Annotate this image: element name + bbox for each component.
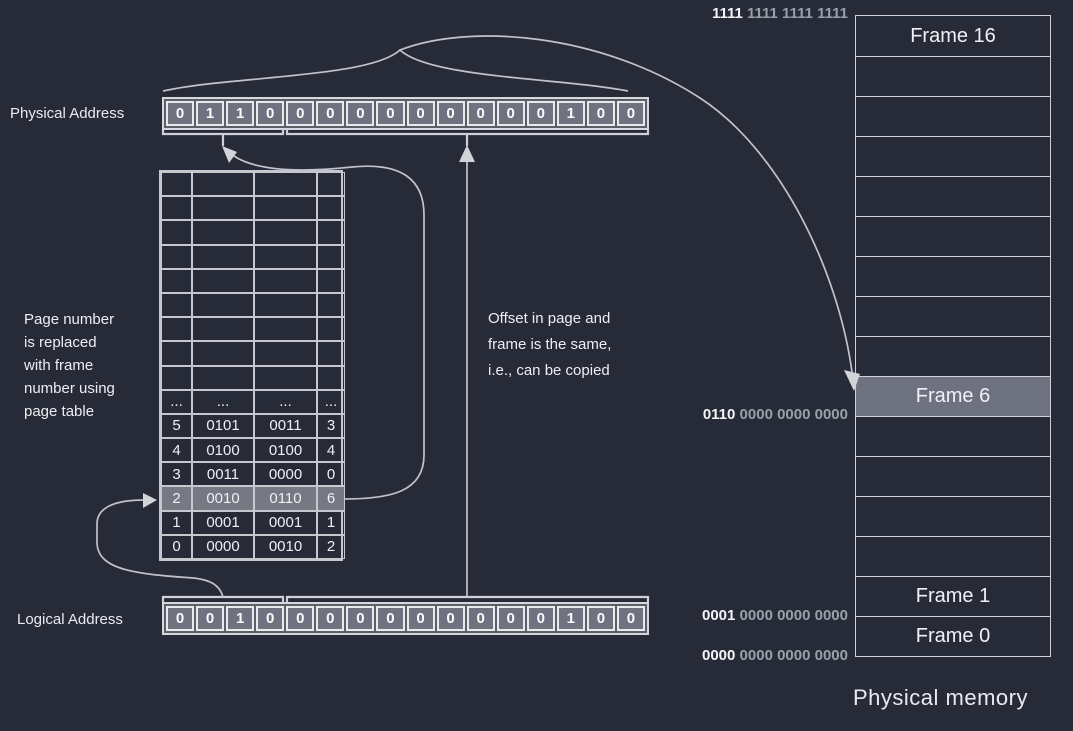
memory-frame-row: Frame 16	[856, 16, 1050, 56]
page-table-cell	[192, 341, 254, 365]
page-table-cell	[161, 293, 192, 317]
bit-cell: 0	[166, 606, 194, 631]
memory-frame-row	[856, 536, 1050, 576]
bit-cell: 0	[437, 101, 465, 126]
bit-cell: 0	[286, 101, 314, 126]
frame-address-label: 1111 1111 1111 1111	[680, 5, 848, 22]
page-table-cell	[317, 317, 345, 341]
frame-address-bold-group: 0001	[702, 607, 735, 624]
page-table-cell: ...	[317, 390, 345, 414]
page-table-cell: 0	[317, 462, 345, 486]
frame-address-label: 0001 0000 0000 0000	[680, 607, 848, 624]
bit-cell: 1	[557, 101, 585, 126]
page-table-cell: 0001	[192, 511, 254, 535]
page-table-cell	[254, 172, 317, 196]
page-table-cell	[161, 317, 192, 341]
page-table-row-arrowhead	[143, 493, 157, 508]
page-table-cell	[161, 245, 192, 269]
page-table-cell	[161, 366, 192, 390]
bit-cell: 0	[196, 606, 224, 631]
page-table-cell: 0110	[254, 486, 317, 510]
page-table-cell: 3	[161, 462, 192, 486]
page-table-cell: 6	[317, 486, 345, 510]
paging-diagram-canvas: Physical Address 0110000000000100 ......…	[0, 0, 1073, 731]
memory-frame-row	[856, 416, 1050, 456]
page-table-cell	[317, 245, 345, 269]
logical-address-label: Logical Address	[17, 611, 123, 628]
memory-frame-row	[856, 336, 1050, 376]
bit-cell: 0	[617, 606, 645, 631]
page-table-cell: ...	[192, 390, 254, 414]
physical-address-brace	[163, 50, 628, 91]
bit-cell: 0	[587, 606, 615, 631]
bit-cell: 0	[407, 606, 435, 631]
page-table-cell	[317, 172, 345, 196]
page-table-cell: ...	[161, 390, 192, 414]
offset-note: Offset in page and frame is the same, i.…	[488, 306, 611, 384]
bit-cell: 0	[346, 606, 374, 631]
frame-address-label: 0110 0000 0000 0000	[680, 406, 848, 423]
page-table-cell	[254, 293, 317, 317]
bit-cell: 0	[467, 606, 495, 631]
page-table: ............5010100113401000100430011000…	[159, 170, 343, 561]
bit-cell: 0	[166, 101, 194, 126]
page-table-cell: ...	[254, 390, 317, 414]
page-table-cell: 0000	[254, 462, 317, 486]
page-table-cell: 3	[317, 414, 345, 438]
physical-memory-title: Physical memory	[853, 685, 1028, 711]
bit-cell: 0	[407, 101, 435, 126]
page-table-cell	[317, 341, 345, 365]
bit-cell: 0	[437, 606, 465, 631]
page-table-cell: 2	[161, 486, 192, 510]
bit-cell: 0	[587, 101, 615, 126]
page-table-cell	[192, 245, 254, 269]
page-table-cell	[254, 196, 317, 220]
frame-address-label: 0000 0000 0000 0000	[680, 647, 848, 664]
page-table-cell: 4	[161, 438, 192, 462]
page-table-cell	[317, 196, 345, 220]
memory-frame-row	[856, 456, 1050, 496]
memory-frame-row	[856, 216, 1050, 256]
page-table-cell	[317, 269, 345, 293]
page-table-cell	[254, 317, 317, 341]
page-table-cell: 0000	[192, 535, 254, 559]
physical-address-label: Physical Address	[10, 105, 124, 122]
bit-cell: 0	[467, 101, 495, 126]
page-table-cell	[317, 293, 345, 317]
memory-frame-row: Frame 1	[856, 576, 1050, 616]
page-table-cell: 0010	[192, 486, 254, 510]
bit-cell: 0	[527, 101, 555, 126]
page-number-note: Page number is replaced with frame numbe…	[24, 308, 115, 423]
page-table-cell	[254, 366, 317, 390]
offset-copy-arrowhead	[459, 145, 475, 162]
page-table-cell: 5	[161, 414, 192, 438]
page-table-cell	[254, 245, 317, 269]
page-table-cell	[192, 293, 254, 317]
bit-cell: 0	[527, 606, 555, 631]
page-table-cell: 0100	[254, 438, 317, 462]
memory-frame-row: Frame 0	[856, 616, 1050, 656]
page-table-cell	[161, 220, 192, 244]
bit-cell: 0	[617, 101, 645, 126]
page-table-cell	[192, 269, 254, 293]
page-table-cell: 0101	[192, 414, 254, 438]
physical-address-bit-row: 0110000000000100	[162, 97, 649, 130]
page-table-cell: 4	[317, 438, 345, 462]
bit-cell: 1	[226, 101, 254, 126]
page-table-cell	[161, 341, 192, 365]
bit-cell: 0	[316, 101, 344, 126]
bit-cell: 0	[316, 606, 344, 631]
page-table-cell	[161, 172, 192, 196]
page-table-cell	[317, 220, 345, 244]
bit-cell: 0	[256, 101, 284, 126]
frame-address-bold-group: 0000	[702, 647, 735, 664]
page-table-cell: 1	[161, 511, 192, 535]
page-table-cell	[192, 317, 254, 341]
memory-frame-row	[856, 136, 1050, 176]
bit-cell: 0	[346, 101, 374, 126]
physical-memory-column: Frame 16Frame 6Frame 1Frame 0	[855, 15, 1051, 657]
page-table-cell: 1	[317, 511, 345, 535]
page-table-cell	[254, 220, 317, 244]
frame-field-arrowhead	[222, 146, 237, 163]
page-table-cell: 0010	[254, 535, 317, 559]
page-table-cell: 0011	[192, 462, 254, 486]
memory-frame-row	[856, 56, 1050, 96]
page-table-cell	[161, 269, 192, 293]
memory-frame-row: Frame 6	[856, 376, 1050, 416]
memory-frame-row	[856, 296, 1050, 336]
bit-cell: 0	[376, 606, 404, 631]
bit-cell: 1	[226, 606, 254, 631]
bit-cell: 0	[256, 606, 284, 631]
memory-frame-row	[856, 96, 1050, 136]
bit-cell: 0	[376, 101, 404, 126]
page-table-cell: 0001	[254, 511, 317, 535]
page-table-cell: 0	[161, 535, 192, 559]
page-table-cell	[254, 341, 317, 365]
page-table-cell: 2	[317, 535, 345, 559]
page-table-cell	[254, 269, 317, 293]
memory-frame-row	[856, 256, 1050, 296]
page-table-cell	[192, 172, 254, 196]
page-table-cell	[192, 220, 254, 244]
frame-number-to-memory-arrow	[400, 36, 852, 372]
bit-cell: 0	[286, 606, 314, 631]
bit-cell: 0	[497, 101, 525, 126]
page-table-cell	[317, 366, 345, 390]
page-table-cell	[192, 196, 254, 220]
bit-cell: 1	[196, 101, 224, 126]
memory-frame-row	[856, 496, 1050, 536]
frame-address-bold-group: 1111	[712, 5, 743, 22]
page-table-cell: 0011	[254, 414, 317, 438]
page-table-cell: 0100	[192, 438, 254, 462]
page-table-cell	[192, 366, 254, 390]
memory-frame-row	[856, 176, 1050, 216]
page-table-cell	[161, 196, 192, 220]
logical-address-bit-row: 0010000000000100	[162, 602, 649, 635]
bit-cell: 1	[557, 606, 585, 631]
frame-address-bold-group: 0110	[703, 406, 736, 423]
bit-cell: 0	[497, 606, 525, 631]
